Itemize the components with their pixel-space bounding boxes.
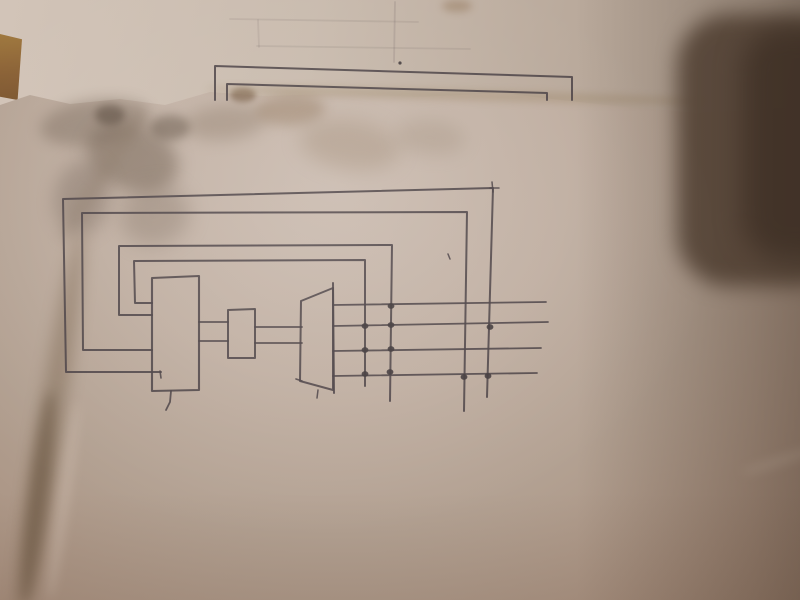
photo-scene xyxy=(0,0,800,600)
vignette-ambient xyxy=(0,0,800,600)
